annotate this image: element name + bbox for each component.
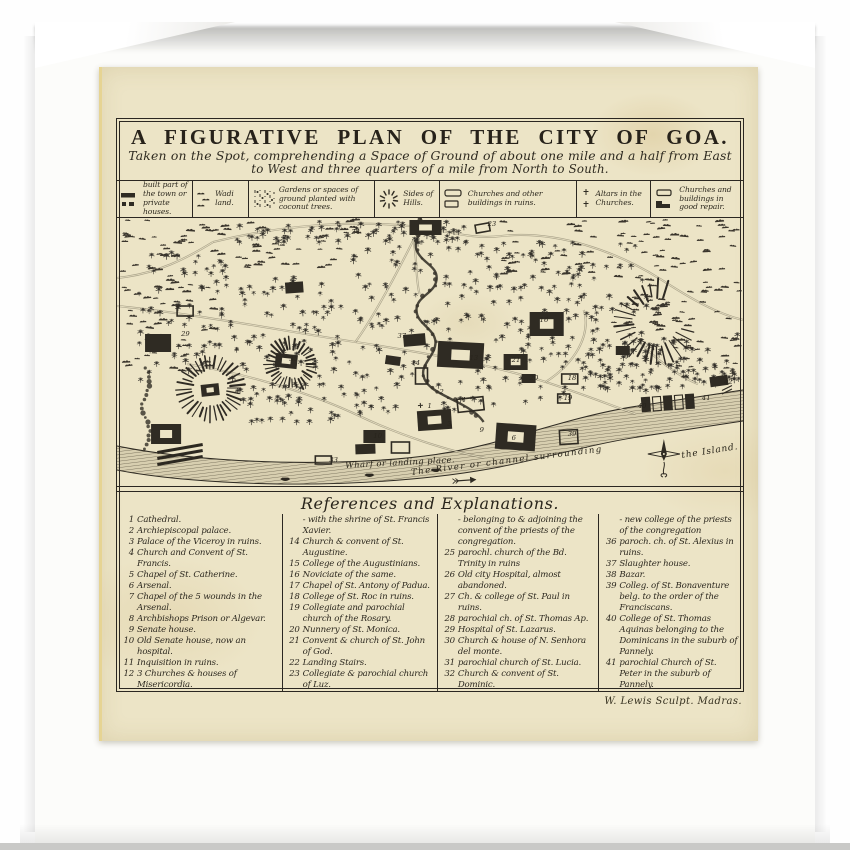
map-building	[409, 220, 441, 235]
ruins-icon	[443, 187, 465, 211]
reference-entry: 21Convent & church of St. John of God.	[287, 636, 434, 658]
references-column-4: - new college of the priests of the cong…	[598, 514, 743, 691]
legend-item-coconut-gardens: Gardens or spaces of ground planted with…	[248, 181, 374, 217]
references-heading: References and Explanations.	[117, 494, 743, 513]
reference-entry: 23Collegiate & parochial church of Luz.	[287, 669, 434, 691]
map-number: 14	[411, 359, 420, 367]
map-number: 24	[350, 228, 360, 236]
island-label: the Island.	[681, 442, 739, 461]
legend-item-ruins: Churches and other buildings in ruins.	[439, 181, 577, 217]
reference-entry: 40College of St. Thomas Aquinas belongin…	[603, 614, 740, 658]
legend-item-built-town: built part of the town or private houses…	[117, 181, 192, 217]
reference-entry: 2Archiepiscopal palace.	[121, 526, 279, 537]
map-number: 19	[564, 394, 573, 402]
reference-entry: 11Inquisition in ruins.	[121, 658, 279, 669]
reference-entry: - belonging to & adjoining the convent o…	[442, 515, 596, 548]
reference-entry: 6Arsenal.	[121, 581, 279, 592]
map-building	[145, 334, 171, 352]
reference-entry: 15College of the Augustinians.	[287, 559, 434, 570]
reference-entry: 7Chapel of the 5 wounds in the Arsenal.	[121, 592, 279, 614]
wadi-land-icon	[196, 189, 212, 209]
map-number: 20	[529, 374, 539, 382]
legend-label: Churches and other buildings in ruins.	[468, 190, 575, 208]
legend-label: Wadi land.	[215, 190, 246, 208]
reference-entry: 14Church & convent of St. Augustine.	[287, 537, 434, 559]
plate-title: A FIGURATIVE PLAN OF THE CITY OF GOA.	[117, 125, 743, 149]
map-number: 21	[511, 356, 521, 364]
map-number: 39	[568, 430, 577, 438]
engraver-attribution: W. Lewis Sculpt. Madras.	[604, 696, 742, 707]
reference-entry: 1Cathedral.	[121, 515, 279, 526]
legend-label: Altars in the Churches.	[595, 190, 648, 208]
legend-label: built part of the town or private houses…	[143, 181, 190, 217]
reference-entry: - with the shrine of St. Francis Xavier.	[287, 515, 434, 537]
map-number: 16	[540, 316, 549, 324]
map-number: 37	[397, 332, 406, 340]
references-columns: 1Cathedral.2Archiepiscopal palace.3Palac…	[117, 514, 743, 691]
reference-entry: 4Church and Convent of St. Francis.	[121, 548, 279, 570]
right-edge-shadow	[813, 36, 827, 832]
reference-entry: 27Ch. & college of St. Paul in ruins.	[442, 592, 596, 614]
good-repair-icon	[654, 187, 676, 211]
bottom-shadow	[20, 824, 830, 843]
legend-item-good-repair: Churches and buildings in good repair.	[650, 181, 743, 217]
hill-sides-icon	[378, 187, 400, 211]
reference-entry: 29Hospital of St. Lazarus.	[442, 625, 596, 636]
legend-label: Sides of Hills.	[403, 190, 436, 208]
reference-entry: 17Chapel of St. Antony of Padua.	[287, 581, 434, 592]
map-number: 23	[487, 220, 497, 228]
map-building	[151, 424, 181, 444]
map-building	[616, 346, 630, 355]
reference-entry: 123 Churches & houses of Misericordia.	[121, 669, 279, 691]
legend-label: Churches and buildings in good repair.	[679, 186, 741, 213]
map-number: 29	[180, 330, 190, 338]
reference-entry: 38Bazar.	[603, 570, 740, 581]
reference-entry: - new college of the priests of the cong…	[603, 515, 740, 537]
map-number: 1	[427, 402, 431, 410]
built-town-icon	[120, 190, 140, 208]
plate-subtitle-line1: Taken on the Spot, comprehending a Space…	[117, 149, 743, 163]
reference-entry: 39Colleg. of St. Bonaventure belg. to th…	[603, 581, 740, 614]
plate-subtitle-line2: to West and three quarters of a mile fro…	[117, 163, 743, 176]
map-number: 10	[373, 432, 382, 440]
bottom-mount-strip	[0, 843, 850, 850]
map-number: 6	[512, 434, 517, 442]
reference-entry: 26Old city Hospital, almost abandoned.	[442, 570, 596, 592]
map-number: 42	[723, 378, 733, 386]
references-column-2: - with the shrine of St. Francis Xavier.…	[282, 514, 437, 691]
map-number: 41	[701, 394, 711, 402]
compass-rose	[648, 439, 680, 477]
map-paper: A FIGURATIVE PLAN OF THE CITY OF GOA. Ta…	[99, 67, 758, 741]
reference-entry: 10Old Senate house, now an hospital.	[121, 636, 279, 658]
map-number: 2	[439, 388, 444, 396]
map-building	[285, 281, 304, 293]
reference-entry: 5Chapel of St. Catherine.	[121, 570, 279, 581]
map-engraving: 2935333713141461021201819163924234041423…	[117, 218, 743, 486]
reference-entry: 28parochial ch. of St. Thomas Ap.	[442, 614, 596, 625]
map-frame: A FIGURATIVE PLAN OF THE CITY OF GOA. Ta…	[116, 118, 744, 692]
coconut-gardens-icon	[252, 188, 276, 210]
map-building	[403, 333, 426, 347]
map-building	[355, 444, 375, 455]
reference-entry: 20Nunnery of St. Monica.	[287, 625, 434, 636]
reference-entry: 31parochial church of St. Lucia.	[442, 658, 596, 669]
reference-entry: 32Church & convent of St. Dominic.	[442, 669, 596, 691]
map-building	[385, 355, 401, 366]
reference-entry: 41parochial Church of St. Peter in the s…	[603, 658, 740, 691]
references-column-3: - belonging to & adjoining the convent o…	[437, 514, 599, 691]
map-building	[641, 394, 694, 412]
reference-entry: 9Senate house.	[121, 625, 279, 636]
map-number: 4	[461, 396, 466, 404]
photo-backdrop: A FIGURATIVE PLAN OF THE CITY OF GOA. Ta…	[0, 0, 850, 850]
reference-entry: 22Landing Stairs.	[287, 658, 434, 669]
map-number: 40	[637, 402, 647, 410]
reference-entry: 37Slaughter house.	[603, 559, 740, 570]
reference-entry: 8Archbishops Prison or Algevar.	[121, 614, 279, 625]
map-canvas: 2935333713141461021201819163924234041423…	[117, 218, 743, 487]
reference-entry: 36paroch. ch. of St. Alexius in ruins.	[603, 537, 740, 559]
legend-item-hill-sides: Sides of Hills.	[374, 181, 438, 217]
map-number: 3	[448, 420, 452, 428]
legend-label: Gardens or spaces of ground planted with…	[279, 186, 372, 213]
reference-entry: 3Palace of the Viceroy in ruins.	[121, 537, 279, 548]
legend-item-altars: Altars in the Churches.	[576, 181, 650, 217]
map-number: 18	[568, 374, 577, 382]
map-number: 33	[329, 456, 338, 464]
reference-entry: 16Noviciate of the same.	[287, 570, 434, 581]
reference-entry: 30Church & house of N. Senhora del monte…	[442, 636, 596, 658]
references-column-1: 1Cathedral.2Archiepiscopal palace.3Palac…	[117, 514, 282, 691]
reference-entry: 19Collegiate and parochial church of the…	[287, 603, 434, 625]
altars-icon	[580, 187, 592, 211]
references-section: References and Explanations. 1Cathedral.…	[117, 491, 743, 691]
reference-entry: 25parochl. church of the Bd. Trinity in …	[442, 548, 596, 570]
map-number: 13	[470, 354, 479, 362]
map-building	[201, 383, 220, 397]
reference-entry: 18College of St. Roc in ruins.	[287, 592, 434, 603]
map-legend: built part of the town or private houses…	[117, 180, 743, 218]
map-building	[391, 442, 409, 453]
map-number: 9	[480, 426, 485, 434]
legend-item-wadi-land: Wadi land.	[192, 181, 248, 217]
map-number: 35	[289, 355, 298, 363]
